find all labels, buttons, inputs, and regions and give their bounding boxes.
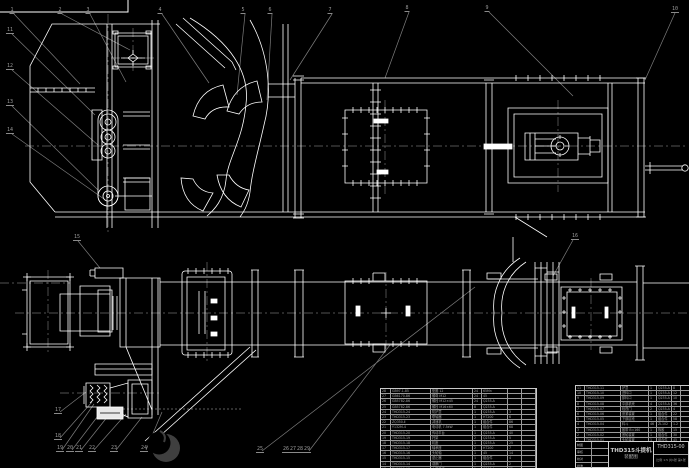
balloon-label: 23 bbox=[110, 446, 118, 452]
bom-table-left: 28 GB97.1-85 垫圈 12 24 65Mn 27 GB6170-86 … bbox=[380, 388, 537, 468]
balloon-number: 11 bbox=[7, 27, 13, 33]
bom-cell-weight: 2 bbox=[508, 462, 522, 466]
bom-cell-note bbox=[522, 420, 536, 424]
balloon-number: 16 bbox=[572, 233, 578, 239]
balloon-number: 9 bbox=[485, 5, 488, 11]
balloon-label: 7 bbox=[327, 8, 332, 14]
bom-cell-weight: 25 bbox=[508, 441, 522, 445]
bom-cell-weight: 7 bbox=[508, 446, 522, 450]
bom-cell-code: THD315-02 bbox=[585, 433, 621, 437]
bom-cell-qty: 1 bbox=[473, 462, 482, 466]
bom-cell-qty: 1 bbox=[649, 417, 657, 421]
bom-cell-code: THD315-03 bbox=[585, 428, 621, 432]
bom-cell-seq: 25 bbox=[381, 405, 391, 409]
bom-cell-note bbox=[681, 428, 689, 432]
bom-cell-seq: 19 bbox=[381, 436, 391, 440]
bom-cell-material: ZL102 bbox=[657, 422, 672, 426]
bom-cell-qty: 1 bbox=[473, 441, 482, 445]
bom-cell-material: HT200 bbox=[482, 446, 508, 450]
bom-cell-seq: 2 bbox=[576, 433, 585, 437]
bom-cell-code: THD315-17 bbox=[391, 446, 431, 450]
bom-cell-qty: 2 bbox=[473, 446, 482, 450]
bom-cell-code: THD315-14 bbox=[391, 462, 431, 466]
bom-cell-note bbox=[681, 412, 689, 416]
bom-cell-qty: 2 bbox=[649, 407, 657, 411]
balloon-label: 13 bbox=[6, 100, 14, 106]
bom-cell-weight: 36 bbox=[672, 402, 681, 406]
bom-cell-qty: 1 bbox=[649, 396, 657, 400]
bom-cell-seq: 6 bbox=[576, 412, 585, 416]
title-block: 制图 审核 校对 批准 THD315斗提机 装配图 THD315-00 比例 1… bbox=[575, 441, 689, 468]
bom-cell-note bbox=[681, 422, 689, 426]
bom-cell-weight: 68 bbox=[508, 425, 522, 429]
balloon-number: 18 bbox=[55, 433, 61, 439]
boot-tension-assembly bbox=[84, 364, 152, 419]
balloon-number: 20 bbox=[67, 445, 73, 451]
bom-cell-code: THD315-19 bbox=[391, 436, 431, 440]
support-legs bbox=[145, 347, 256, 444]
balloon-number: 12 bbox=[7, 63, 13, 69]
bom-cell-seq: 27 bbox=[381, 394, 391, 398]
inlet-opening bbox=[342, 107, 430, 186]
bom-cell-weight bbox=[508, 405, 522, 409]
bom-cell-name: 螺栓 M16×60 bbox=[431, 405, 473, 409]
bom-cell-note bbox=[681, 417, 689, 421]
bom-cell-note bbox=[522, 436, 536, 440]
bom-cell-note bbox=[522, 415, 536, 419]
bom-cell-material: 组合件 bbox=[657, 417, 672, 421]
sign-label: 校对 bbox=[576, 456, 592, 462]
bom-cell-weight: 15 bbox=[672, 428, 681, 432]
balloon-number: 2 bbox=[58, 7, 61, 13]
bom-cell-seq: 11 bbox=[576, 386, 585, 390]
balloon-label: 9 bbox=[484, 6, 489, 12]
balloon-label: 24 bbox=[140, 446, 148, 452]
sign-label: 审核 bbox=[576, 449, 592, 455]
balloon-number: 25 bbox=[257, 446, 263, 452]
bom-cell-note bbox=[522, 389, 536, 393]
bom-cell-seq: 24 bbox=[381, 410, 391, 414]
take-up-section bbox=[484, 75, 608, 220]
bom-cell-note bbox=[522, 399, 536, 403]
bom-cell-code: THD315-16 bbox=[391, 451, 431, 455]
bom-cell-material: Q235-A bbox=[482, 436, 508, 440]
bom-cell-qty: 8 bbox=[473, 405, 482, 409]
inspection-door bbox=[113, 31, 151, 69]
balloon-number: 21 bbox=[76, 445, 82, 451]
bom-cell-seq: 26 bbox=[381, 399, 391, 403]
bom-cell-seq: 28 bbox=[381, 389, 391, 393]
bom-cell-qty: 1 bbox=[473, 415, 482, 419]
bom-cell-name: 垫圈 12 bbox=[431, 389, 473, 393]
bom-cell-note bbox=[522, 405, 536, 409]
balloon-label: 25 bbox=[256, 447, 264, 453]
bom-cell-code: THD315-04 bbox=[585, 422, 621, 426]
balloon-label: 8 bbox=[404, 6, 409, 12]
balloon-label: 19 bbox=[56, 446, 64, 452]
bom-cell-qty: 1 bbox=[473, 456, 482, 460]
bom-cell-material: 45 bbox=[482, 451, 508, 455]
bom-cell-material: HT200 bbox=[482, 415, 508, 419]
bom-cell-qty: 24 bbox=[473, 389, 482, 393]
sign-value bbox=[592, 449, 608, 455]
bom-cell-seq: 10 bbox=[576, 391, 585, 395]
sign-row: 校对 bbox=[576, 456, 608, 463]
bom-cell-name: 逆止器 bbox=[431, 456, 473, 460]
bom-cell-code: THD315-15 bbox=[391, 456, 431, 460]
balloon-label: 5 bbox=[240, 8, 245, 14]
bom-cell-note bbox=[681, 407, 689, 411]
sign-row: 批准 bbox=[576, 463, 608, 468]
bom-cell-code: THD315-07 bbox=[585, 407, 621, 411]
sign-label: 批准 bbox=[576, 463, 592, 468]
bom-cell-note bbox=[522, 462, 536, 466]
bom-cell-qty: 24 bbox=[473, 399, 482, 403]
balloon-label: 17 bbox=[54, 408, 62, 414]
balloon-number: 4 bbox=[158, 7, 161, 13]
bom-cell-name: 进料口 bbox=[621, 391, 649, 395]
balloon-label: 21 bbox=[75, 446, 83, 452]
balloon-label: 15 bbox=[73, 235, 81, 241]
balloon-number: 6 bbox=[268, 7, 271, 13]
bom-cell-note bbox=[522, 451, 536, 455]
bom-cell-name: 轴承座 bbox=[431, 446, 473, 450]
bom-cell-material: 组合件 bbox=[482, 456, 508, 460]
take-up-screw bbox=[645, 162, 688, 174]
bom-cell-code: THD315-09 bbox=[585, 396, 621, 400]
bom-cell-note bbox=[522, 446, 536, 450]
bom-cell-name: 电动机 7.5kW bbox=[431, 425, 473, 429]
bom-cell-weight: 12 bbox=[672, 391, 681, 395]
drawing-type: 装配图 bbox=[609, 455, 653, 461]
watermark-moon-icon bbox=[148, 431, 181, 462]
sign-row: 制图 bbox=[576, 442, 608, 449]
bom-cell-name: 张紧装置 bbox=[621, 412, 649, 416]
balloon-number: 24 bbox=[141, 445, 147, 451]
bom-cell-name: 螺栓 M12×45 bbox=[431, 399, 473, 403]
balloon-number: 13 bbox=[7, 99, 13, 105]
bom-cell-material: 组合件 bbox=[657, 433, 672, 437]
balloon-number: 7 bbox=[328, 7, 331, 13]
bom-cell-material: 组合件 bbox=[657, 412, 672, 416]
sign-value bbox=[592, 463, 608, 468]
bom-cell-name: 卸料口 bbox=[621, 396, 649, 400]
bom-cell-code: THD315-18 bbox=[391, 441, 431, 445]
bom-cell-name: 胶带 B=160 bbox=[621, 428, 649, 432]
bom-cell-qty: 1 bbox=[649, 412, 657, 416]
bom-cell-weight: 30 bbox=[672, 433, 681, 437]
balloon-number: 8 bbox=[405, 5, 408, 11]
bom-cell-name: 中部机壳 bbox=[621, 402, 649, 406]
bom-cell-name: 观察门 bbox=[431, 462, 473, 466]
bom-cell-note bbox=[522, 394, 536, 398]
bom-cell-weight: 22 bbox=[672, 412, 681, 416]
bom-cell-weight bbox=[508, 389, 522, 393]
bom-cell-seq: 22 bbox=[381, 420, 391, 424]
bom-cell-material: 65Mn bbox=[482, 389, 508, 393]
title-block-number-cell: THD315-00 比例 1:5 共1张 第1张 bbox=[654, 442, 688, 467]
bom-cell-qty: 1 bbox=[473, 420, 482, 424]
motor bbox=[60, 286, 117, 336]
bom-cell-code: THD315-24 bbox=[391, 410, 431, 414]
balloon-number: 15 bbox=[74, 234, 80, 240]
bom-cell-note bbox=[522, 441, 536, 445]
balloon-number: 23 bbox=[111, 445, 117, 451]
bom-cell-seq: 5 bbox=[576, 417, 585, 421]
bom-cell-weight bbox=[508, 394, 522, 398]
bom-cell-material: Q235-A bbox=[482, 405, 508, 409]
bom-cell-seq: 4 bbox=[576, 422, 585, 426]
drawing-number: THD315-00 bbox=[654, 442, 688, 455]
bom-cell-weight: 40 bbox=[508, 431, 522, 435]
product-name: THD315斗提机 bbox=[609, 448, 653, 455]
bom-cell-seq: 20 bbox=[381, 431, 391, 435]
bom-cell-qty: 1 bbox=[649, 433, 657, 437]
scale-note: 比例 1:5 共1张 第1张 bbox=[654, 455, 688, 467]
bom-cell-qty: 1 bbox=[473, 425, 482, 429]
bom-cell-name: 机座 bbox=[431, 441, 473, 445]
bom-cell-code: ZQ350-Ⅱ bbox=[391, 420, 431, 424]
balloon-label: 18 bbox=[54, 434, 62, 440]
bom-cell-material: Q235-A bbox=[657, 396, 672, 400]
bom-cell-code: THD315-06 bbox=[585, 412, 621, 416]
balloon-number: 17 bbox=[55, 407, 61, 413]
bom-cell-weight: 5 bbox=[508, 436, 522, 440]
bom-cell-material: Q235-A bbox=[482, 441, 508, 445]
balloon-label: 4 bbox=[157, 8, 162, 14]
bom-cell-note bbox=[681, 396, 689, 400]
bom-cell-qty: 1 bbox=[473, 451, 482, 455]
sign-value bbox=[592, 442, 608, 448]
bom-cell-seq: 9 bbox=[576, 396, 585, 400]
balloon-label: 3 bbox=[85, 8, 90, 14]
balloon-number: 14 bbox=[7, 127, 13, 133]
sign-value bbox=[592, 456, 608, 462]
balloon-label: 2 bbox=[57, 8, 62, 14]
balloon-number: 3 bbox=[86, 7, 89, 13]
bom-cell-name: 减速机 bbox=[431, 420, 473, 424]
bom-cell-name: 底轮装置 bbox=[621, 433, 649, 437]
balloon-label: 12 bbox=[6, 64, 14, 70]
bom-cell-material: 组合件 bbox=[482, 425, 508, 429]
bom-cell-code: THD315-05 bbox=[585, 417, 621, 421]
bom-cell-material: Q235-A bbox=[657, 402, 672, 406]
bom-cell-code: THD315-08 bbox=[585, 402, 621, 406]
bom-cell-qty: 2 bbox=[473, 436, 482, 440]
bom-cell-note bbox=[681, 386, 689, 390]
bom-cell-weight: 10 bbox=[672, 396, 681, 400]
bom-cell-material: Q235-A bbox=[482, 399, 508, 403]
bom-cell-code: GB6170-86 bbox=[391, 394, 431, 398]
bom-cell-seq: 16 bbox=[381, 451, 391, 455]
sheet-border-fragment bbox=[0, 0, 128, 12]
bom-cell-code: THD315-11 bbox=[585, 386, 621, 390]
bom-cell-name: 头轮轴 bbox=[431, 451, 473, 455]
bom-cell-name: 下部区段 bbox=[621, 417, 649, 421]
bom-cell-seq: 17 bbox=[381, 446, 391, 450]
balloon-number: 10 bbox=[672, 6, 678, 12]
bom-cell-qty: 1 bbox=[649, 391, 657, 395]
balloon-label: 29 bbox=[303, 447, 311, 453]
bom-cell-material: Q235-A bbox=[657, 386, 672, 390]
bom-cell-qty: 46 bbox=[649, 422, 657, 426]
bom-cell-name: 护罩 bbox=[621, 386, 649, 390]
bom-cell-seq: 23 bbox=[381, 415, 391, 419]
bom-cell-qty: 4 bbox=[649, 402, 657, 406]
bom-cell-material: 组合件 bbox=[482, 420, 508, 424]
bom-cell-material: 橡胶 bbox=[657, 428, 672, 432]
cad-drawing-canvas[interactable]: 1 2 3 4 5 6 7 8 9 10 11 12 bbox=[0, 0, 689, 468]
bom-cell-name: 托架 bbox=[431, 436, 473, 440]
bom-cell-qty: 1 bbox=[649, 386, 657, 390]
balloon-label: 14 bbox=[6, 128, 14, 134]
bom-cell-weight: 6 bbox=[508, 415, 522, 419]
bom-cell-name: 联轴器 bbox=[431, 415, 473, 419]
bom-cell-material: Q235-A bbox=[482, 462, 508, 466]
bom-cell-material: Q235-A bbox=[657, 391, 672, 395]
bom-cell-weight bbox=[508, 399, 522, 403]
bom-cell-seq: 15 bbox=[381, 456, 391, 460]
bom-cell-material: 45 bbox=[482, 394, 508, 398]
bom-cell-code: Y132M-4 bbox=[391, 425, 431, 429]
bom-cell-material: Q235-A bbox=[657, 407, 672, 411]
balloon-number: 29 bbox=[304, 446, 310, 452]
bom-cell-seq: 3 bbox=[576, 428, 585, 432]
sign-label: 制图 bbox=[576, 442, 592, 448]
bom-cell-seq: 21 bbox=[381, 425, 391, 429]
bom-cell-code: THD315-20 bbox=[391, 431, 431, 435]
bom-cell-weight: 1.2 bbox=[672, 422, 681, 426]
title-block-sign-grid: 制图 审核 校对 批准 bbox=[576, 442, 609, 467]
bom-cell-code: GB5782-86 bbox=[391, 405, 431, 409]
bom-cell-seq: 14 bbox=[381, 462, 391, 466]
top-view-geometry bbox=[30, 18, 688, 262]
bom-cell-code: GB97.1-85 bbox=[391, 389, 431, 393]
balloon-label: 1 bbox=[9, 8, 14, 14]
bom-cell-name: 检视门 bbox=[621, 407, 649, 411]
bom-cell-weight: 4 bbox=[672, 407, 681, 411]
balloon-number: 1 bbox=[10, 7, 13, 13]
balloon-label: 20 bbox=[66, 446, 74, 452]
bom-cell-weight: 3 bbox=[508, 410, 522, 414]
bom-cell-note bbox=[522, 410, 536, 414]
bom-cell-qty: 1 bbox=[473, 410, 482, 414]
bom-cell-material: Q235-A bbox=[482, 431, 508, 435]
bom-cell-code: GB5782-86 bbox=[391, 399, 431, 403]
bom-cell-note bbox=[522, 425, 536, 429]
bom-cell-code: THD315-23 bbox=[391, 415, 431, 419]
bom-cell-name: 料斗 bbox=[621, 422, 649, 426]
bom-cell-weight: 86 bbox=[508, 420, 522, 424]
bom-cell-name: 防护罩 bbox=[431, 410, 473, 414]
bom-cell-note bbox=[681, 391, 689, 395]
balloon-label: 6 bbox=[267, 8, 272, 14]
balloon-label: 11 bbox=[6, 28, 14, 34]
bom-cell-seq: 7 bbox=[576, 407, 585, 411]
bom-cell-material: Q235-A bbox=[482, 410, 508, 414]
bom-cell-weight: 8 bbox=[672, 386, 681, 390]
bom-cell-name: 螺母 M12 bbox=[431, 394, 473, 398]
bom-cell-weight: 58 bbox=[672, 417, 681, 421]
sign-row: 审核 bbox=[576, 449, 608, 456]
title-block-name-cell: THD315斗提机 装配图 bbox=[609, 442, 654, 467]
bom-cell-note bbox=[681, 402, 689, 406]
bom-cell-seq: 8 bbox=[576, 402, 585, 406]
bom-cell-note bbox=[522, 431, 536, 435]
bom-cell-note bbox=[522, 456, 536, 460]
balloon-label: 10 bbox=[671, 7, 679, 13]
bom-cell-qty: 24 bbox=[473, 394, 482, 398]
balloon-label: 22 bbox=[88, 446, 96, 452]
bom-cell-qty: 1 bbox=[473, 431, 482, 435]
bom-cell-weight: 4 bbox=[508, 456, 522, 460]
bom-cell-seq: 18 bbox=[381, 441, 391, 445]
bom-cell-qty: 1 bbox=[649, 428, 657, 432]
balloon-number: 22 bbox=[89, 445, 95, 451]
bom-cell-note bbox=[681, 433, 689, 437]
bom-cell-name: 传动平台 bbox=[431, 431, 473, 435]
bom-cell-code: THD315-10 bbox=[585, 391, 621, 395]
bom-cell-weight: 14 bbox=[508, 451, 522, 455]
balloon-label: 16 bbox=[571, 234, 579, 240]
balloon-number: 5 bbox=[241, 7, 244, 13]
balloon-number: 19 bbox=[57, 445, 63, 451]
